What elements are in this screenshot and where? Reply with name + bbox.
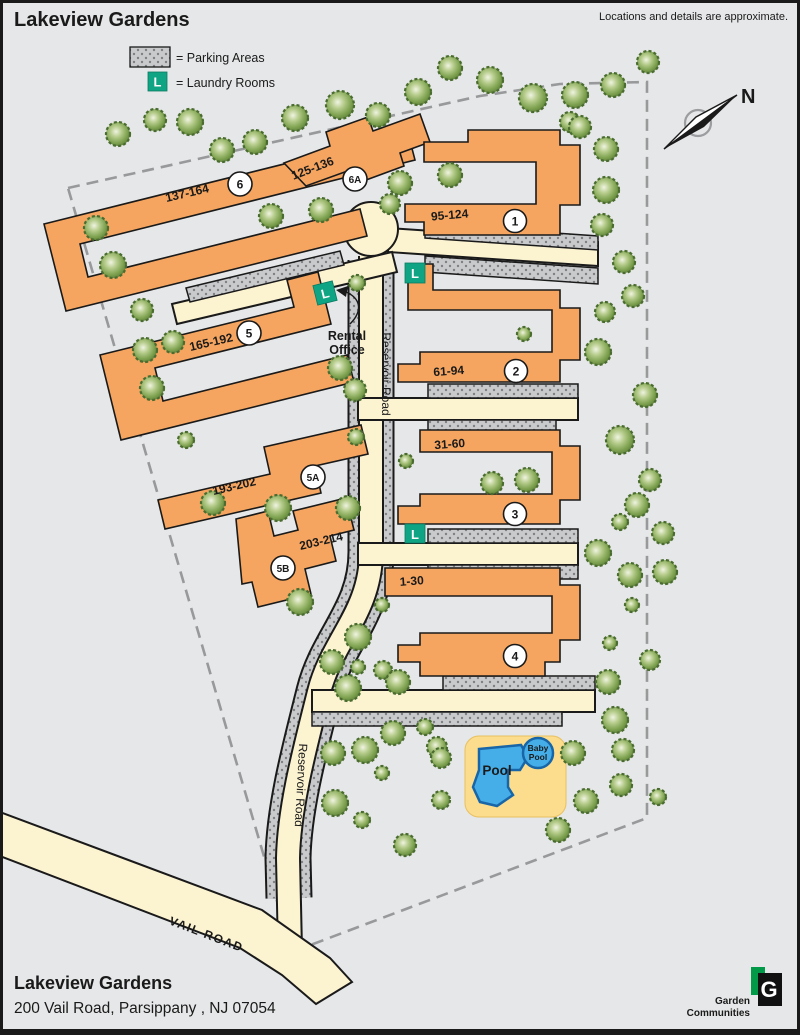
tree-icon	[625, 493, 649, 517]
lakeview-gardens-map: Pool Baby Pool L L L 137-164 6 125-136 6…	[0, 0, 800, 1035]
tree-icon	[517, 327, 531, 341]
tree-icon	[322, 790, 348, 816]
site-map: Pool Baby Pool L L L 137-164 6 125-136 6…	[0, 0, 800, 1035]
tree-icon	[591, 214, 613, 236]
tree-icon	[106, 122, 130, 146]
parking-strip	[312, 712, 562, 726]
tree-icon	[351, 660, 365, 674]
tree-icon	[585, 339, 611, 365]
tree-icon	[622, 285, 644, 307]
compass-north-label: N	[741, 86, 755, 108]
tree-icon	[431, 748, 451, 768]
tree-icon	[259, 204, 283, 228]
tree-icon	[326, 91, 354, 119]
tree-icon	[336, 496, 360, 520]
tree-icon	[344, 379, 366, 401]
laundry-letter: L	[411, 266, 419, 281]
tree-icon	[438, 163, 462, 187]
legend-laundry-letter: L	[154, 75, 162, 90]
tree-icon	[265, 495, 291, 521]
tree-icon	[243, 130, 267, 154]
logo-text-2: Communities	[687, 1008, 751, 1019]
units-label: 1-30	[399, 573, 424, 589]
building-number: 5	[246, 327, 253, 341]
tree-icon	[519, 84, 547, 112]
tree-icon	[381, 721, 405, 745]
disclaimer: Locations and details are approximate.	[599, 11, 788, 23]
tree-icon	[603, 636, 617, 650]
parking-strip	[443, 676, 595, 690]
tree-icon	[405, 79, 431, 105]
tree-icon	[515, 468, 539, 492]
building-number: 3	[512, 508, 519, 522]
tree-icon	[380, 194, 400, 214]
pool-area: Pool Baby Pool	[465, 736, 566, 817]
tree-icon	[162, 331, 184, 353]
tree-icon	[287, 589, 313, 615]
tree-icon	[438, 56, 462, 80]
tree-icon	[613, 251, 635, 273]
tree-icon	[640, 650, 660, 670]
tree-icon	[345, 624, 371, 650]
units-label: 61-94	[433, 363, 465, 379]
tree-icon	[320, 650, 344, 674]
tree-icon	[594, 137, 618, 161]
tree-icon	[481, 472, 503, 494]
units-label: 31-60	[434, 436, 466, 452]
tree-icon	[321, 741, 345, 765]
baby-pool-label-2: Pool	[529, 752, 547, 762]
building-number: 2	[513, 365, 520, 379]
logo-letter: G	[760, 977, 777, 1002]
tree-icon	[574, 789, 598, 813]
tree-icon	[386, 670, 410, 694]
tree-icon	[595, 302, 615, 322]
tree-icon	[652, 522, 674, 544]
legend-parking-label: = Parking Areas	[176, 51, 265, 65]
tree-icon	[144, 109, 166, 131]
reservoir-road-label-upper: Reservoir Road	[379, 332, 393, 415]
building-number: 6A	[349, 175, 362, 186]
tree-icon	[84, 216, 108, 240]
tree-icon	[309, 198, 333, 222]
tree-icon	[210, 138, 234, 162]
tree-icon	[625, 598, 639, 612]
pool-label: Pool	[482, 763, 511, 778]
tree-icon	[562, 82, 588, 108]
parking-strip	[428, 529, 578, 543]
tree-icon	[546, 818, 570, 842]
tree-icon	[366, 103, 390, 127]
tree-icon	[596, 670, 620, 694]
tree-icon	[633, 383, 657, 407]
tree-icon	[477, 67, 503, 93]
tree-icon	[417, 719, 433, 735]
building-number: 1	[512, 215, 519, 229]
tree-icon	[612, 514, 628, 530]
tree-icon	[653, 560, 677, 584]
tree-icon	[610, 774, 632, 796]
tree-icon	[432, 791, 450, 809]
footer-community-name: Lakeview Gardens	[14, 973, 172, 993]
tree-icon	[650, 789, 666, 805]
tree-icon	[282, 105, 308, 131]
logo-text-1: Garden	[715, 996, 750, 1007]
tree-icon	[394, 834, 416, 856]
rental-office-label-2: Office	[329, 343, 364, 357]
tree-icon	[388, 171, 412, 195]
building-number: 4	[512, 650, 519, 664]
tree-icon	[328, 356, 352, 380]
tree-icon	[637, 51, 659, 73]
parking-strip	[428, 384, 578, 398]
legend-laundry-label: = Laundry Rooms	[176, 76, 275, 90]
tree-icon	[561, 741, 585, 765]
tree-icon	[593, 177, 619, 203]
map-title: Lakeview Gardens	[14, 9, 190, 31]
tree-icon	[131, 299, 153, 321]
tree-icon	[178, 432, 194, 448]
tree-icon	[399, 454, 413, 468]
building-number: 5A	[307, 473, 320, 484]
footer-address: 200 Vail Road, Parsippany , NJ 07054	[14, 1000, 276, 1017]
parking-swatch-icon	[130, 47, 170, 67]
tree-icon	[100, 252, 126, 278]
tree-icon	[354, 812, 370, 828]
building-number: 6	[237, 178, 244, 192]
tree-icon	[133, 338, 157, 362]
tree-icon	[612, 739, 634, 761]
bottom-bar	[0, 1029, 800, 1035]
tree-icon	[349, 275, 365, 291]
tree-icon	[639, 469, 661, 491]
rental-office-label-1: Rental	[328, 329, 366, 343]
tree-icon	[352, 737, 378, 763]
road-between-3-and-4	[358, 543, 578, 565]
laundry-letter: L	[411, 527, 419, 542]
tree-icon	[348, 429, 364, 445]
tree-icon	[375, 766, 389, 780]
tree-icon	[140, 376, 164, 400]
tree-icon	[375, 598, 389, 612]
tree-icon	[335, 675, 361, 701]
tree-icon	[602, 707, 628, 733]
tree-icon	[585, 540, 611, 566]
tree-icon	[177, 109, 203, 135]
tree-icon	[601, 73, 625, 97]
tree-icon	[569, 116, 591, 138]
tree-icon	[618, 563, 642, 587]
building-number: 5B	[277, 564, 290, 575]
tree-icon	[606, 426, 634, 454]
